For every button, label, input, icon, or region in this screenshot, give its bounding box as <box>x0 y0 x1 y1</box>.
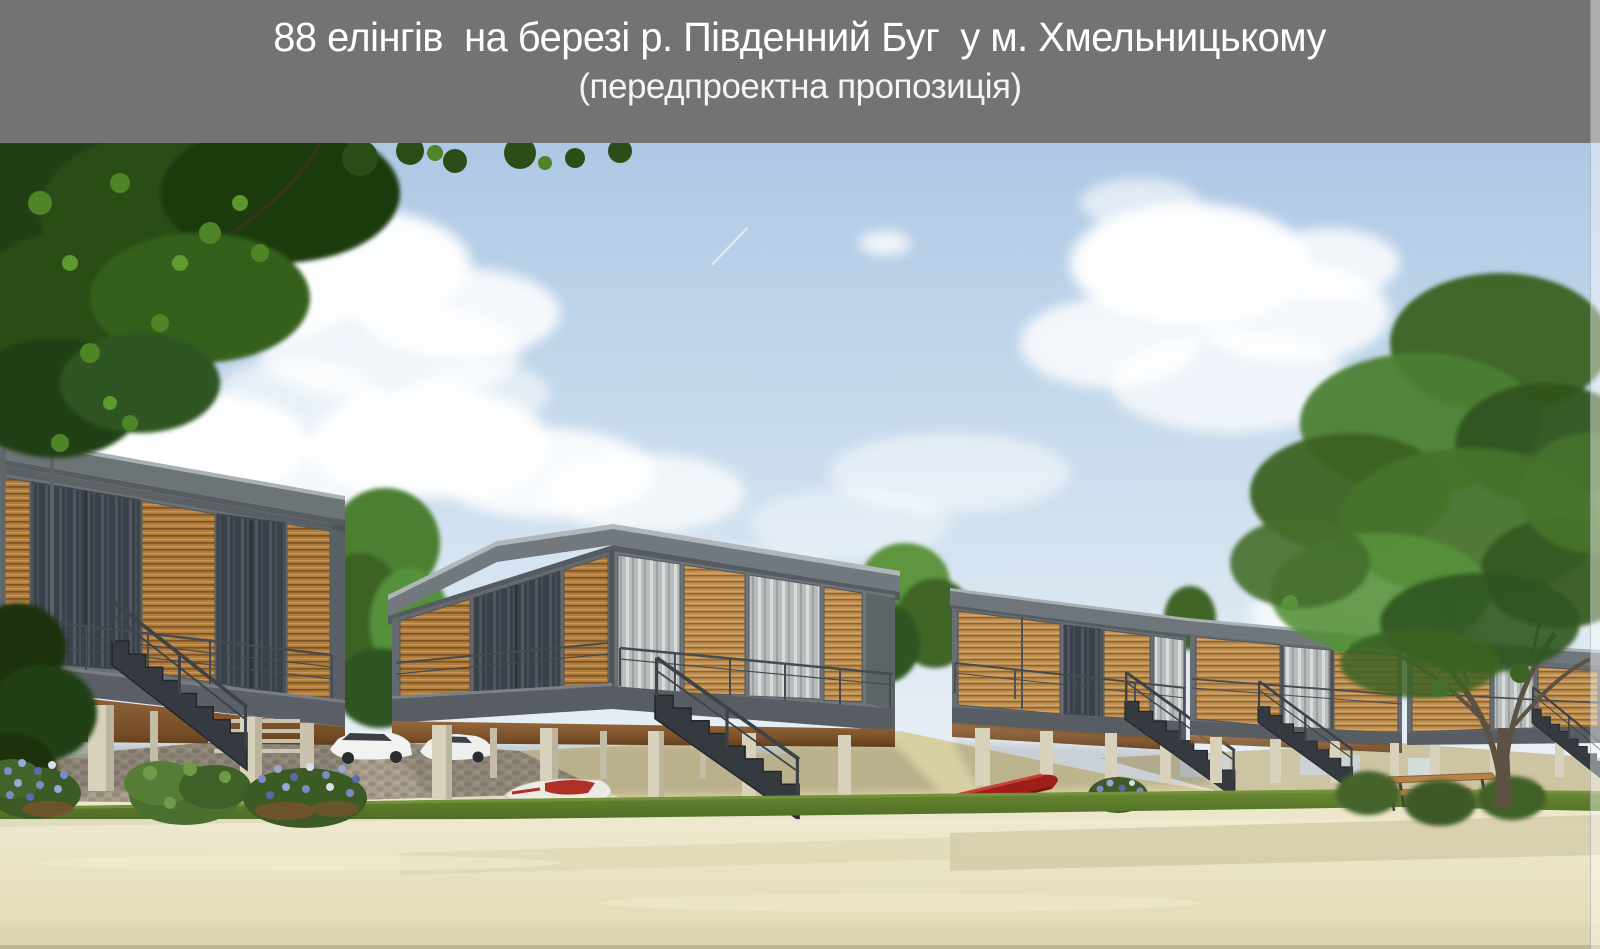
presentation-slide: 88 елінгів на березі р. Південний Буг у … <box>0 0 1600 949</box>
curtain-window <box>618 555 680 692</box>
slide-header: 88 елінгів на березі р. Південний Буг у … <box>0 0 1600 143</box>
scan-edge-strip <box>1590 0 1600 949</box>
timber-panel <box>564 556 608 692</box>
timber-panel <box>824 587 862 702</box>
glass-door <box>1064 625 1100 716</box>
timber-panel <box>958 611 1060 714</box>
render-scene <box>0 143 1600 949</box>
sand-foreground <box>0 815 1600 949</box>
timber-panel <box>684 565 745 695</box>
slide-title: 88 елінгів на березі р. Південний Буг у … <box>274 14 1327 61</box>
slide-subtitle: (передпроектна пропозиція) <box>578 67 1021 107</box>
